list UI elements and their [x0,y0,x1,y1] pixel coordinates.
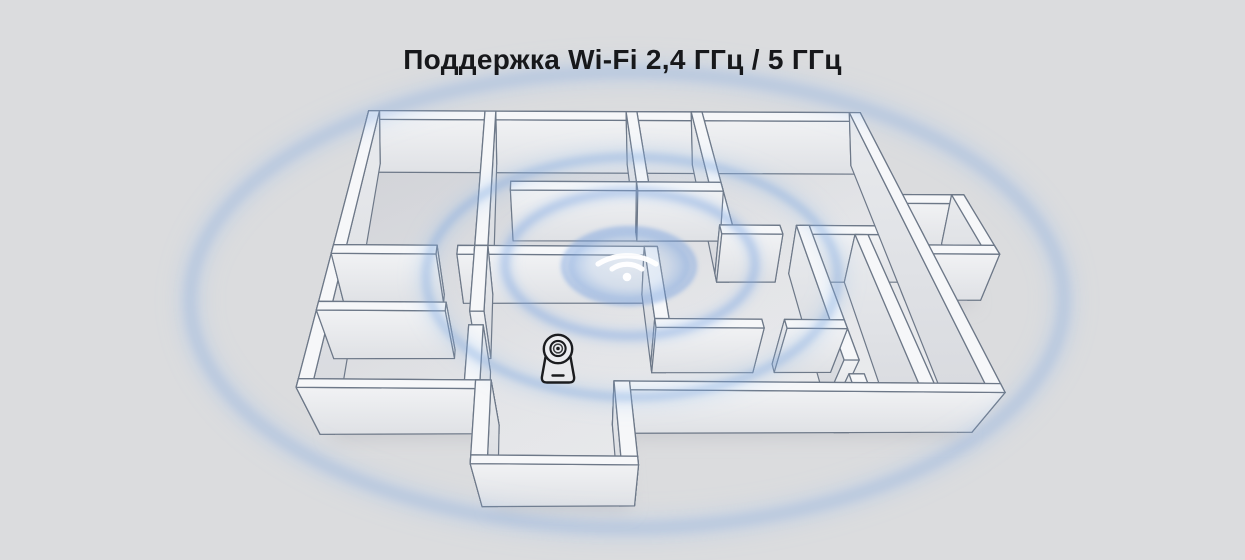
camera-icon [542,335,574,383]
wall-top [366,111,864,122]
wall-top [470,455,638,465]
floorplan-walls [296,111,1005,507]
camera-lens-dot [556,347,560,351]
wall-face [296,387,499,434]
floorplan-illustration [0,0,1245,560]
page-title: Поддержка Wi-Fi 2,4 ГГц / 5 ГГц [0,44,1245,76]
wall-face [470,464,638,507]
wifi-coverage-banner: Поддержка Wi-Fi 2,4 ГГц / 5 ГГц [0,0,1245,560]
wall-top [296,379,491,389]
wifi-dot [623,273,632,282]
